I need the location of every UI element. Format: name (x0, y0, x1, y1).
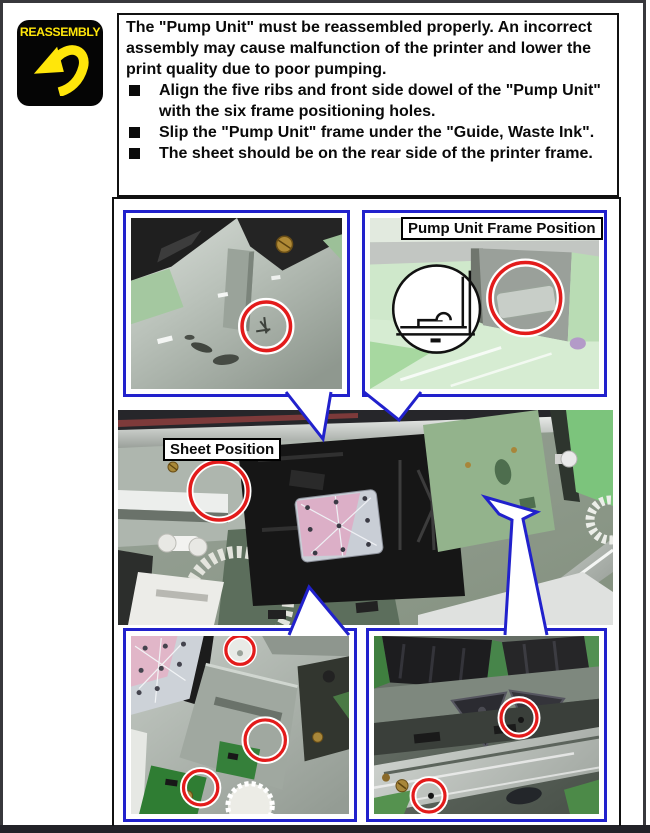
photo-dowel-position (123, 210, 350, 397)
bullet-square-icon (129, 85, 140, 96)
photo-dowel-scene (131, 218, 342, 389)
pump-cap (294, 489, 383, 563)
photo-rear-holes (366, 628, 607, 822)
frame-cross-section-diagram (393, 266, 480, 353)
pump-frame-position-label: Pump Unit Frame Position (401, 217, 603, 240)
page-border-left (0, 0, 3, 833)
photo-pump-frame-scene (370, 218, 599, 389)
reassembly-badge-label: REASSEMBLY (17, 20, 103, 39)
photo-printer-interior: Sheet Position (118, 410, 613, 625)
instruction-bullet-1: Align the five ribs and front side dowel… (126, 80, 612, 122)
bullet-square-icon (129, 127, 140, 138)
reassembly-badge: REASSEMBLY (17, 20, 103, 106)
page-border-bottom (0, 825, 650, 833)
bullet-square-icon (129, 148, 140, 159)
instruction-bullet-3-text: The sheet should be on the rear side of … (159, 143, 593, 164)
instruction-bullet-2: Slip the "Pump Unit" frame under the "Gu… (126, 122, 612, 143)
instruction-bullet-1-text: Align the five ribs and front side dowel… (159, 80, 612, 122)
page-border-right (643, 0, 646, 828)
photo-front-ribs-scene (131, 636, 349, 814)
instruction-paragraph: The "Pump Unit" must be reassembled prop… (126, 17, 612, 80)
photo-pump-frame-position: Pump Unit Frame Position (362, 210, 607, 397)
reassembly-arrow-icon (31, 40, 89, 96)
photo-front-ribs (123, 628, 357, 822)
instruction-bullet-3: The sheet should be on the rear side of … (126, 143, 612, 164)
instruction-box: The "Pump Unit" must be reassembled prop… (117, 13, 619, 197)
sheet-position-label: Sheet Position (163, 438, 281, 461)
figure-box: Pump Unit Frame Position (112, 197, 621, 826)
instruction-bullet-2-text: Slip the "Pump Unit" frame under the "Gu… (159, 122, 594, 143)
photo-rear-holes-scene (374, 636, 599, 814)
page-border-top (0, 0, 646, 3)
manual-page: REASSEMBLY The "Pump Unit" must be reass… (0, 0, 650, 833)
